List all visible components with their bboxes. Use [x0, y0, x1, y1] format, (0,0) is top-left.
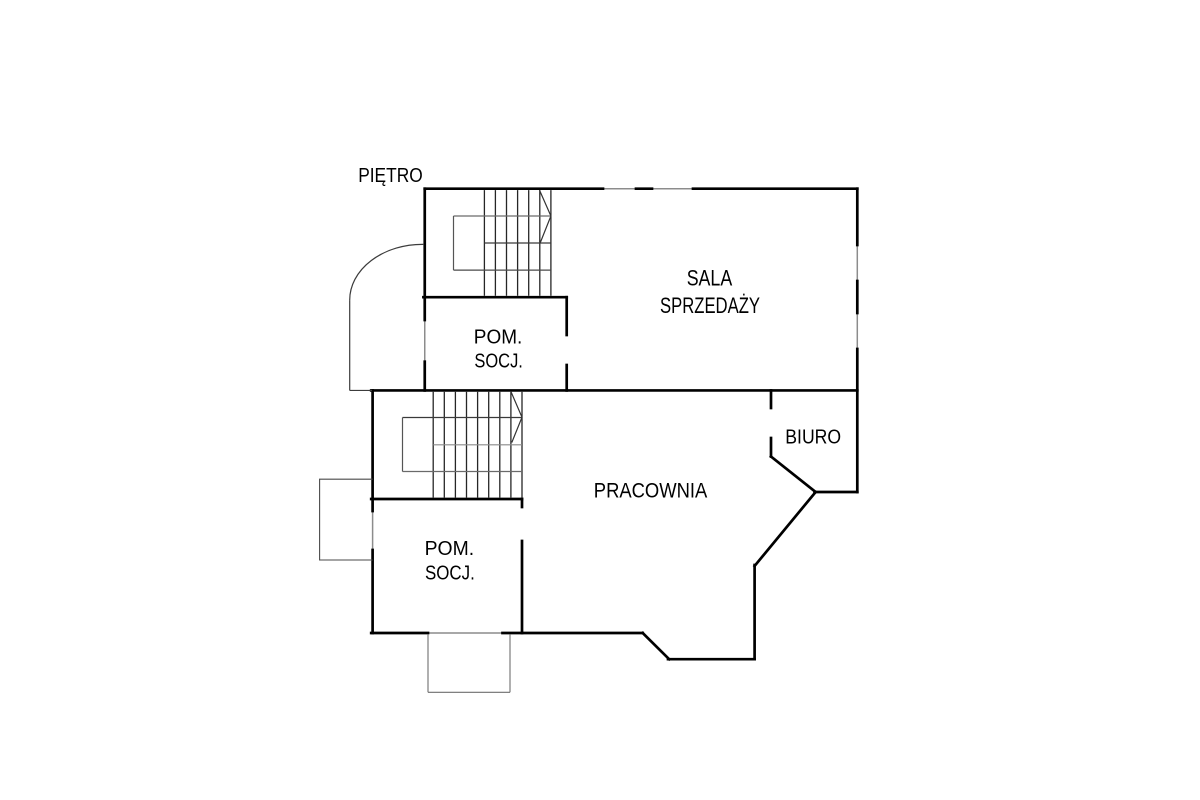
svg-text:PIĘTRO: PIĘTRO: [358, 164, 423, 187]
svg-text:SPRZEDAŻY: SPRZEDAŻY: [660, 293, 760, 318]
svg-text:POM.: POM.: [425, 538, 475, 560]
svg-text:PRACOWNIA: PRACOWNIA: [594, 479, 708, 502]
svg-text:SALA: SALA: [687, 266, 733, 291]
svg-text:SOCJ.: SOCJ.: [425, 563, 475, 585]
svg-text:BIURO: BIURO: [785, 427, 841, 449]
svg-text:POM.: POM.: [474, 327, 523, 349]
svg-text:SOCJ.: SOCJ.: [474, 350, 523, 372]
